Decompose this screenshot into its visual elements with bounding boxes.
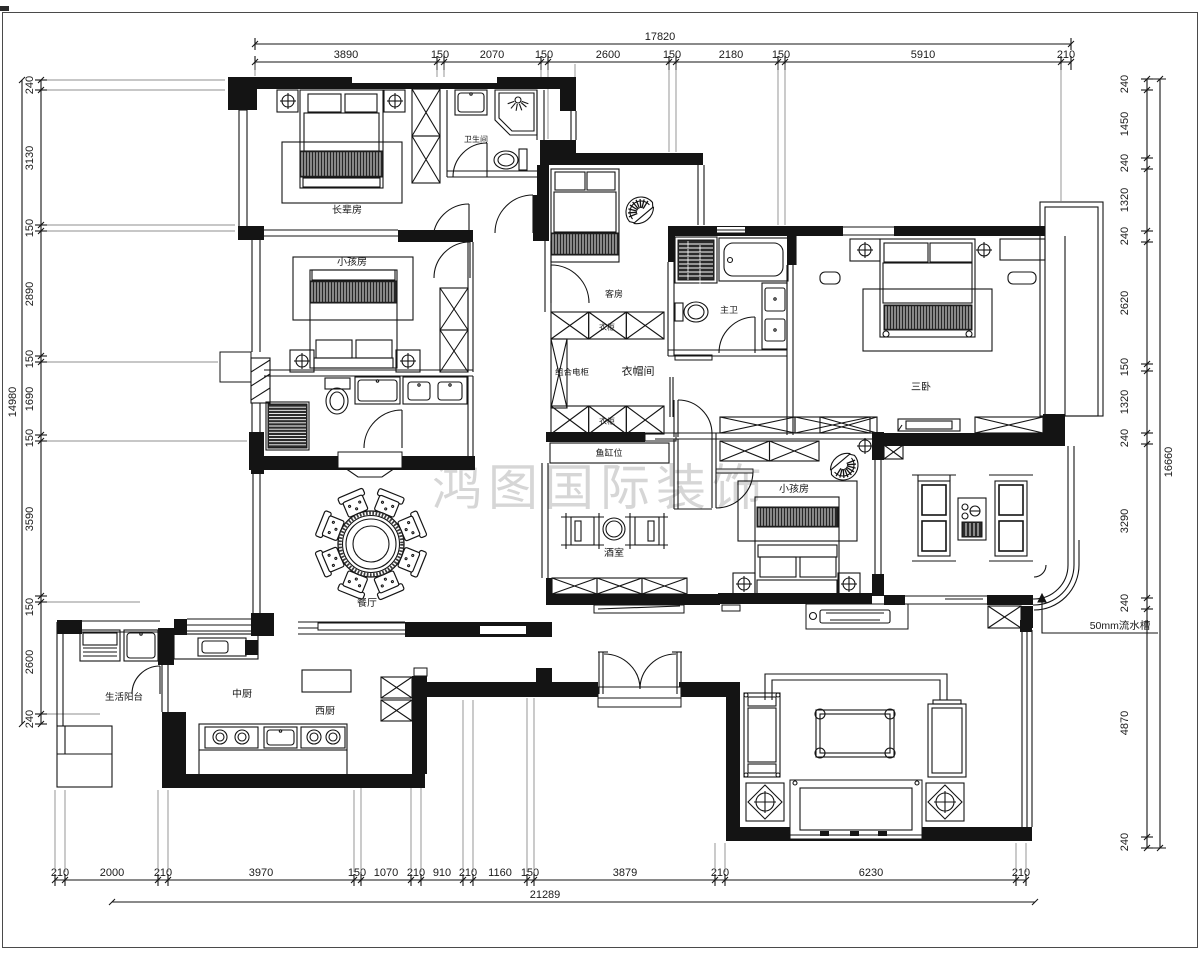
svg-text:150: 150 [663, 49, 681, 61]
svg-text:5910: 5910 [911, 49, 935, 61]
svg-text:240: 240 [1119, 429, 1131, 447]
svg-text:1690: 1690 [24, 387, 36, 411]
svg-text:150: 150 [521, 867, 539, 879]
svg-text:21289: 21289 [530, 889, 561, 901]
svg-text:240: 240 [1119, 227, 1131, 245]
svg-text:150: 150 [535, 49, 553, 61]
svg-text:3130: 3130 [24, 146, 36, 170]
svg-text:1320: 1320 [1119, 390, 1131, 414]
svg-text:2890: 2890 [24, 282, 36, 306]
svg-text:150: 150 [772, 49, 790, 61]
svg-text:210: 210 [407, 867, 425, 879]
svg-text:6230: 6230 [859, 867, 883, 879]
svg-text:150: 150 [1119, 358, 1131, 376]
svg-text:150: 150 [24, 350, 36, 368]
svg-text:210: 210 [459, 867, 477, 879]
svg-text:210: 210 [154, 867, 172, 879]
svg-text:1320: 1320 [1119, 188, 1131, 212]
svg-text:150: 150 [24, 429, 36, 447]
svg-text:16660: 16660 [1163, 447, 1175, 478]
svg-text:3879: 3879 [613, 867, 637, 879]
svg-text:210: 210 [1012, 867, 1030, 879]
svg-text:150: 150 [24, 219, 36, 237]
svg-text:2600: 2600 [24, 650, 36, 674]
svg-text:1450: 1450 [1119, 112, 1131, 136]
svg-text:17820: 17820 [645, 31, 676, 43]
svg-text:3590: 3590 [24, 507, 36, 531]
svg-text:2070: 2070 [480, 49, 504, 61]
svg-text:1070: 1070 [374, 867, 398, 879]
svg-text:3290: 3290 [1119, 509, 1131, 533]
svg-text:14980: 14980 [7, 387, 19, 418]
svg-text:240: 240 [1119, 154, 1131, 172]
svg-text:3890: 3890 [334, 49, 358, 61]
svg-text:50mm: 50mm [1090, 620, 1119, 632]
svg-text:240: 240 [1119, 75, 1131, 93]
svg-text:2180: 2180 [719, 49, 743, 61]
svg-text:240: 240 [1119, 594, 1131, 612]
svg-text:2620: 2620 [1119, 291, 1131, 315]
svg-text:240: 240 [1119, 833, 1131, 851]
svg-text:210: 210 [1057, 49, 1075, 61]
svg-text:4870: 4870 [1119, 711, 1131, 735]
svg-text:150: 150 [348, 867, 366, 879]
svg-text:210: 210 [51, 867, 69, 879]
svg-text:240: 240 [24, 710, 36, 728]
svg-text:2000: 2000 [100, 867, 124, 879]
svg-text:150: 150 [431, 49, 449, 61]
svg-text:210: 210 [711, 867, 729, 879]
svg-text:3970: 3970 [249, 867, 273, 879]
svg-text:240: 240 [24, 76, 36, 94]
svg-text:150: 150 [24, 598, 36, 616]
svg-text:910: 910 [433, 867, 451, 879]
svg-text:1160: 1160 [488, 867, 512, 879]
svg-text:2600: 2600 [596, 49, 620, 61]
